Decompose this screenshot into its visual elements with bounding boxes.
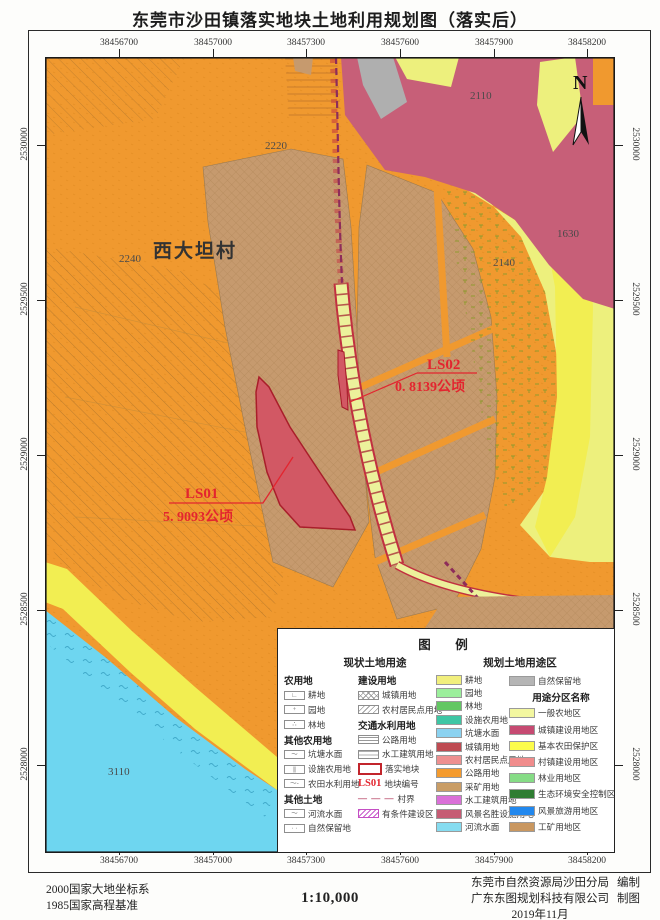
legend-section-planned: 规划土地用途区 (456, 655, 584, 670)
legend-swatch (436, 701, 462, 711)
credit-role: 编制 (617, 876, 640, 891)
legend-item: LS01地块编号 (358, 777, 440, 792)
page-title: 东莞市沙田镇落实地块土地利用规划图（落实后） (0, 6, 660, 31)
legend-item: 水工建筑用地 (436, 794, 510, 807)
legend-item: ∟耕地 (284, 688, 360, 703)
tick (400, 49, 401, 57)
credits: 东莞市自然资源局沙田分局 编制 广东东图规划科技有限公司 制图 2019年11月 (471, 876, 640, 920)
bottom-tan-band (425, 595, 615, 628)
legend-label: 城镇用地 (465, 741, 499, 753)
legend-item: 林地 (436, 700, 510, 713)
legend-item: ～坑塘水面 (284, 747, 360, 762)
legend-swatch (358, 705, 379, 714)
legend-label: 林地 (465, 700, 482, 712)
legend-label: 耕地 (308, 689, 325, 701)
legend-title: 图 例 (278, 634, 614, 653)
credit-org: 广东东图规划科技有限公司 (471, 892, 609, 907)
legend-label: 公路用地 (382, 734, 416, 746)
tick (119, 49, 120, 57)
legend-label: 设施农用地 (465, 714, 508, 726)
legend-column-planned-b: 自然保留地用途分区名称一般农地区城镇建设用地区基本农田保护区村镇建设用地区林业用… (509, 673, 613, 835)
legend-swatch (509, 757, 535, 767)
legend-label: 园地 (465, 687, 482, 699)
legend-item: +园地 (284, 703, 360, 718)
legend-item: 园地 (436, 686, 510, 699)
legend-swatch: ∟ (284, 691, 305, 700)
tick (37, 145, 45, 146)
legend-section-header: 其他农用地 (284, 732, 360, 747)
coord-label: 38457300 (271, 856, 341, 866)
legend-label: 地块编号 (384, 778, 418, 790)
legend-item: 水工建筑用地 (358, 747, 440, 762)
tick (37, 610, 45, 611)
legend-label: 基本农田保护区 (538, 740, 598, 752)
legend-swatch (436, 822, 462, 832)
legend-swatch (358, 735, 379, 744)
legend-label: 自然保留地 (308, 822, 351, 834)
legend-label: 公路用地 (465, 767, 499, 779)
tick (615, 455, 623, 456)
area-code-2240: 2240 (119, 253, 142, 265)
tick (37, 300, 45, 301)
coord-label: 38456700 (84, 856, 154, 866)
legend-swatch (358, 809, 379, 818)
tick (587, 49, 588, 57)
area-code-3110: 3110 (108, 766, 130, 778)
legend-label: 一般农地区 (538, 707, 581, 719)
legend-item: 工矿用地区 (509, 819, 613, 835)
legend-swatch (358, 763, 382, 775)
legend-swatch: ～ (284, 809, 305, 818)
legend-section-header: 交通水利用地 (358, 717, 440, 732)
legend-swatch: — — — (358, 794, 395, 803)
legend-swatch: ||| (284, 765, 305, 774)
legend-label: 工矿用地区 (538, 821, 581, 833)
ls02-id-label: LS02 (427, 357, 460, 373)
coord-label: 2530000 (630, 114, 640, 174)
legend-swatch (509, 676, 535, 686)
legend-column-current-b: 建设用地城镇用地农村居民点用地交通水利用地公路用地水工建筑用地落实地块LS01地… (358, 673, 440, 821)
legend-label: 坑塘水面 (308, 748, 342, 760)
legend-label: 自然保留地 (538, 675, 581, 687)
legend-label: 坑塘水面 (465, 727, 499, 739)
legend-label: 农村居民点用地 (382, 704, 442, 716)
legend-swatch: + (284, 705, 305, 714)
legend-label: 河流水面 (308, 808, 342, 820)
legend-swatch (436, 675, 462, 685)
legend-section-header: 农用地 (284, 673, 360, 688)
legend-item: 风景旅游用地区 (509, 803, 613, 819)
legend-swatch (509, 806, 535, 816)
coord-label: 2529500 (20, 269, 30, 329)
coord-label: 2528500 (20, 579, 30, 639)
tick (37, 455, 45, 456)
legend-label: 林业用地区 (538, 772, 581, 784)
legend-item: 坑塘水面 (436, 727, 510, 740)
legend-swatch: · · (284, 824, 305, 833)
legend-section-current: 现状土地用途 (310, 655, 440, 670)
legend-swatch (509, 773, 535, 783)
legend-item: 林业用地区 (509, 770, 613, 786)
legend-swatch (436, 688, 462, 698)
tick (615, 610, 623, 611)
coord-label: 38457600 (365, 38, 435, 48)
legend-item: 采矿用地 (436, 780, 510, 793)
legend-swatch: ～- (284, 779, 305, 788)
legend-swatch (436, 755, 462, 765)
legend-label: 耕地 (465, 674, 482, 686)
coord-label: 2529500 (630, 269, 640, 329)
tick (615, 765, 623, 766)
legend-swatch (509, 789, 535, 799)
legend-item: ～-农田水利用地 (284, 777, 360, 792)
tick (615, 300, 623, 301)
legend-label: 有条件建设区 (382, 808, 434, 820)
coord-label: 38457900 (459, 856, 529, 866)
legend-box: 图 例 现状土地用途 规划土地用途区 农用地∟耕地+园地∴林地其他农用地～坑塘水… (277, 628, 615, 853)
north-label: N (573, 72, 588, 94)
legend-swatch (436, 742, 462, 752)
legend-item: ∴林地 (284, 717, 360, 732)
legend-column-current-a: 农用地∟耕地+园地∴林地其他农用地～坑塘水面|||设施农用地～-农田水利用地其他… (284, 673, 360, 836)
legend-label: 城镇建设用地区 (538, 724, 598, 736)
legend-item: 有条件建设区 (358, 806, 440, 821)
coord-label: 38457600 (365, 856, 435, 866)
legend-item: 设施农用地 (436, 713, 510, 726)
legend-label: 村镇建设用地区 (538, 756, 598, 768)
legend-item: 耕地 (436, 673, 510, 686)
coord-label: 2528000 (20, 734, 30, 794)
legend-item: 城镇建设用地区 (509, 722, 613, 738)
legend-item: 一般农地区 (509, 705, 613, 721)
legend-item: 生态环境安全控制区 (509, 786, 613, 802)
tick (306, 49, 307, 57)
legend-item: — — —村界 (358, 791, 440, 806)
coord-label: 2529000 (630, 424, 640, 484)
area-code-2110: 2110 (470, 90, 492, 102)
legend-label: 城镇用地 (382, 689, 416, 701)
legend-swatch (436, 809, 462, 819)
legend-item: 风景名胜设施用地 (436, 807, 510, 820)
area-code-2220: 2220 (265, 140, 288, 152)
legend-column-planned-a: 耕地园地林地设施农用地坑塘水面城镇用地农村居民点用地公路用地采矿用地水工建筑用地… (436, 673, 510, 834)
ls02-area-label: 0. 8139公顷 (395, 379, 465, 395)
legend-item: 自然保留地 (509, 673, 613, 689)
legend-section-header: 建设用地 (358, 673, 440, 688)
legend-item: 公路用地 (358, 732, 440, 747)
legend-label: 河流水面 (465, 821, 499, 833)
legend-item: |||设施农用地 (284, 762, 360, 777)
legend-label: 林地 (308, 719, 325, 731)
legend-swatch (509, 822, 535, 832)
legend-swatch (358, 750, 379, 759)
ls01-area-label: 5. 9093公顷 (163, 509, 233, 525)
legend-item: 公路用地 (436, 767, 510, 780)
coord-label: 38457300 (271, 38, 341, 48)
coord-label: 38457000 (178, 856, 248, 866)
legend-swatch (436, 728, 462, 738)
legend-item: · ·自然保留地 (284, 821, 360, 836)
legend-item: 村镇建设用地区 (509, 754, 613, 770)
tick (37, 765, 45, 766)
coord-label: 2529000 (20, 424, 30, 484)
legend-label: 生态环境安全控制区 (538, 788, 615, 800)
legend-item: 基本农田保护区 (509, 738, 613, 754)
legend-label: 设施农用地 (308, 763, 351, 775)
legend-label: 园地 (308, 704, 325, 716)
legend-label: 采矿用地 (465, 781, 499, 793)
coord-label: 2528000 (630, 734, 640, 794)
legend-swatch (436, 782, 462, 792)
tick (615, 145, 623, 146)
tick (494, 49, 495, 57)
legend-item: ～河流水面 (284, 806, 360, 821)
legend-swatch (509, 708, 535, 718)
legend-swatch: ～ (284, 750, 305, 759)
legend-section-header: 用途分区名称 (509, 689, 613, 705)
page: 东莞市沙田镇落实地块土地利用规划图（落实后） 38456700 38457000… (0, 0, 660, 920)
legend-item: 农村居民点用地 (436, 753, 510, 766)
coord-label: 38457900 (459, 38, 529, 48)
village-name-label: 西大坦村 (153, 239, 237, 262)
coord-label: 38458200 (552, 38, 622, 48)
credit-org: 东莞市自然资源局沙田分局 (471, 876, 609, 891)
legend-label: 水工建筑用地 (382, 748, 434, 760)
area-code-2140: 2140 (493, 257, 516, 269)
legend-section-header: 其他土地 (284, 791, 360, 806)
credit-role: 制图 (617, 892, 640, 907)
coord-label: 38458200 (552, 856, 622, 866)
legend-label: 风景旅游用地区 (538, 805, 598, 817)
legend-item: 城镇用地 (436, 740, 510, 753)
legend-swatch (436, 768, 462, 778)
legend-swatch: LS01 (358, 779, 381, 789)
legend-swatch: ∴ (284, 720, 305, 729)
legend-item: 农村居民点用地 (358, 703, 440, 718)
credit-date: 2019年11月 (511, 908, 568, 920)
coord-label: 2528500 (630, 579, 640, 639)
coord-label: 38456700 (84, 38, 154, 48)
coord-label: 38457000 (178, 38, 248, 48)
legend-swatch (358, 691, 379, 700)
legend-item: 河流水面 (436, 820, 510, 833)
legend-label: 落实地块 (385, 763, 419, 775)
coord-label: 2530000 (20, 114, 30, 174)
area-code-1630: 1630 (557, 228, 580, 240)
legend-swatch (509, 725, 535, 735)
legend-swatch (509, 741, 535, 751)
legend-swatch (436, 715, 462, 725)
legend-swatch (436, 795, 462, 805)
legend-label: 村界 (398, 793, 415, 805)
legend-label: 农田水利用地 (308, 778, 360, 790)
legend-item: 落实地块 (358, 762, 440, 777)
legend-item: 城镇用地 (358, 688, 440, 703)
ls01-id-label: LS01 (185, 486, 218, 502)
tick (213, 49, 214, 57)
